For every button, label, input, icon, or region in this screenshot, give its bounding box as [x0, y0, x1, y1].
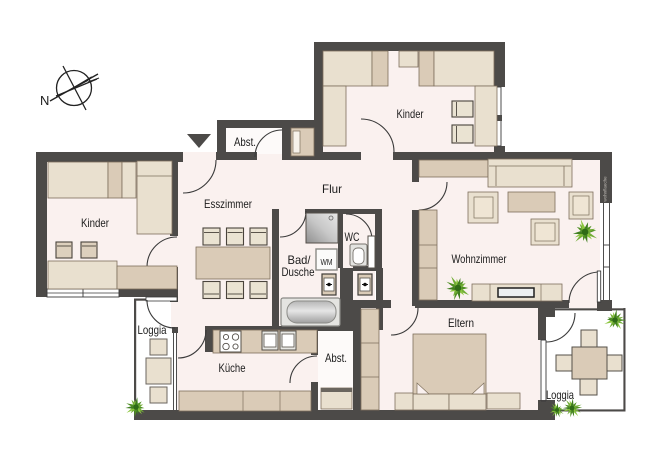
svg-text:Flur: Flur: [322, 182, 342, 196]
svg-text:WC: WC: [345, 230, 360, 244]
svg-text:Dusche: Dusche: [282, 265, 315, 279]
svg-text:Küche: Küche: [219, 361, 246, 375]
svg-text:Loggia: Loggia: [546, 388, 574, 402]
svg-text:Loggia: Loggia: [138, 323, 167, 337]
svg-text:Kinder: Kinder: [397, 107, 424, 121]
svg-text:Abst.: Abst.: [234, 135, 256, 149]
svg-text:Wohnzimmer: Wohnzimmer: [452, 252, 507, 266]
svg-text:Kinder: Kinder: [81, 216, 109, 230]
svg-text:Abst.: Abst.: [325, 351, 347, 365]
svg-text:WM: WM: [321, 258, 333, 267]
svg-text:wohnflaeche: wohnflaeche: [603, 176, 608, 202]
svg-text:Esszimmer: Esszimmer: [204, 197, 252, 211]
svg-text:N: N: [40, 93, 49, 108]
svg-text:Eltern: Eltern: [448, 316, 474, 330]
